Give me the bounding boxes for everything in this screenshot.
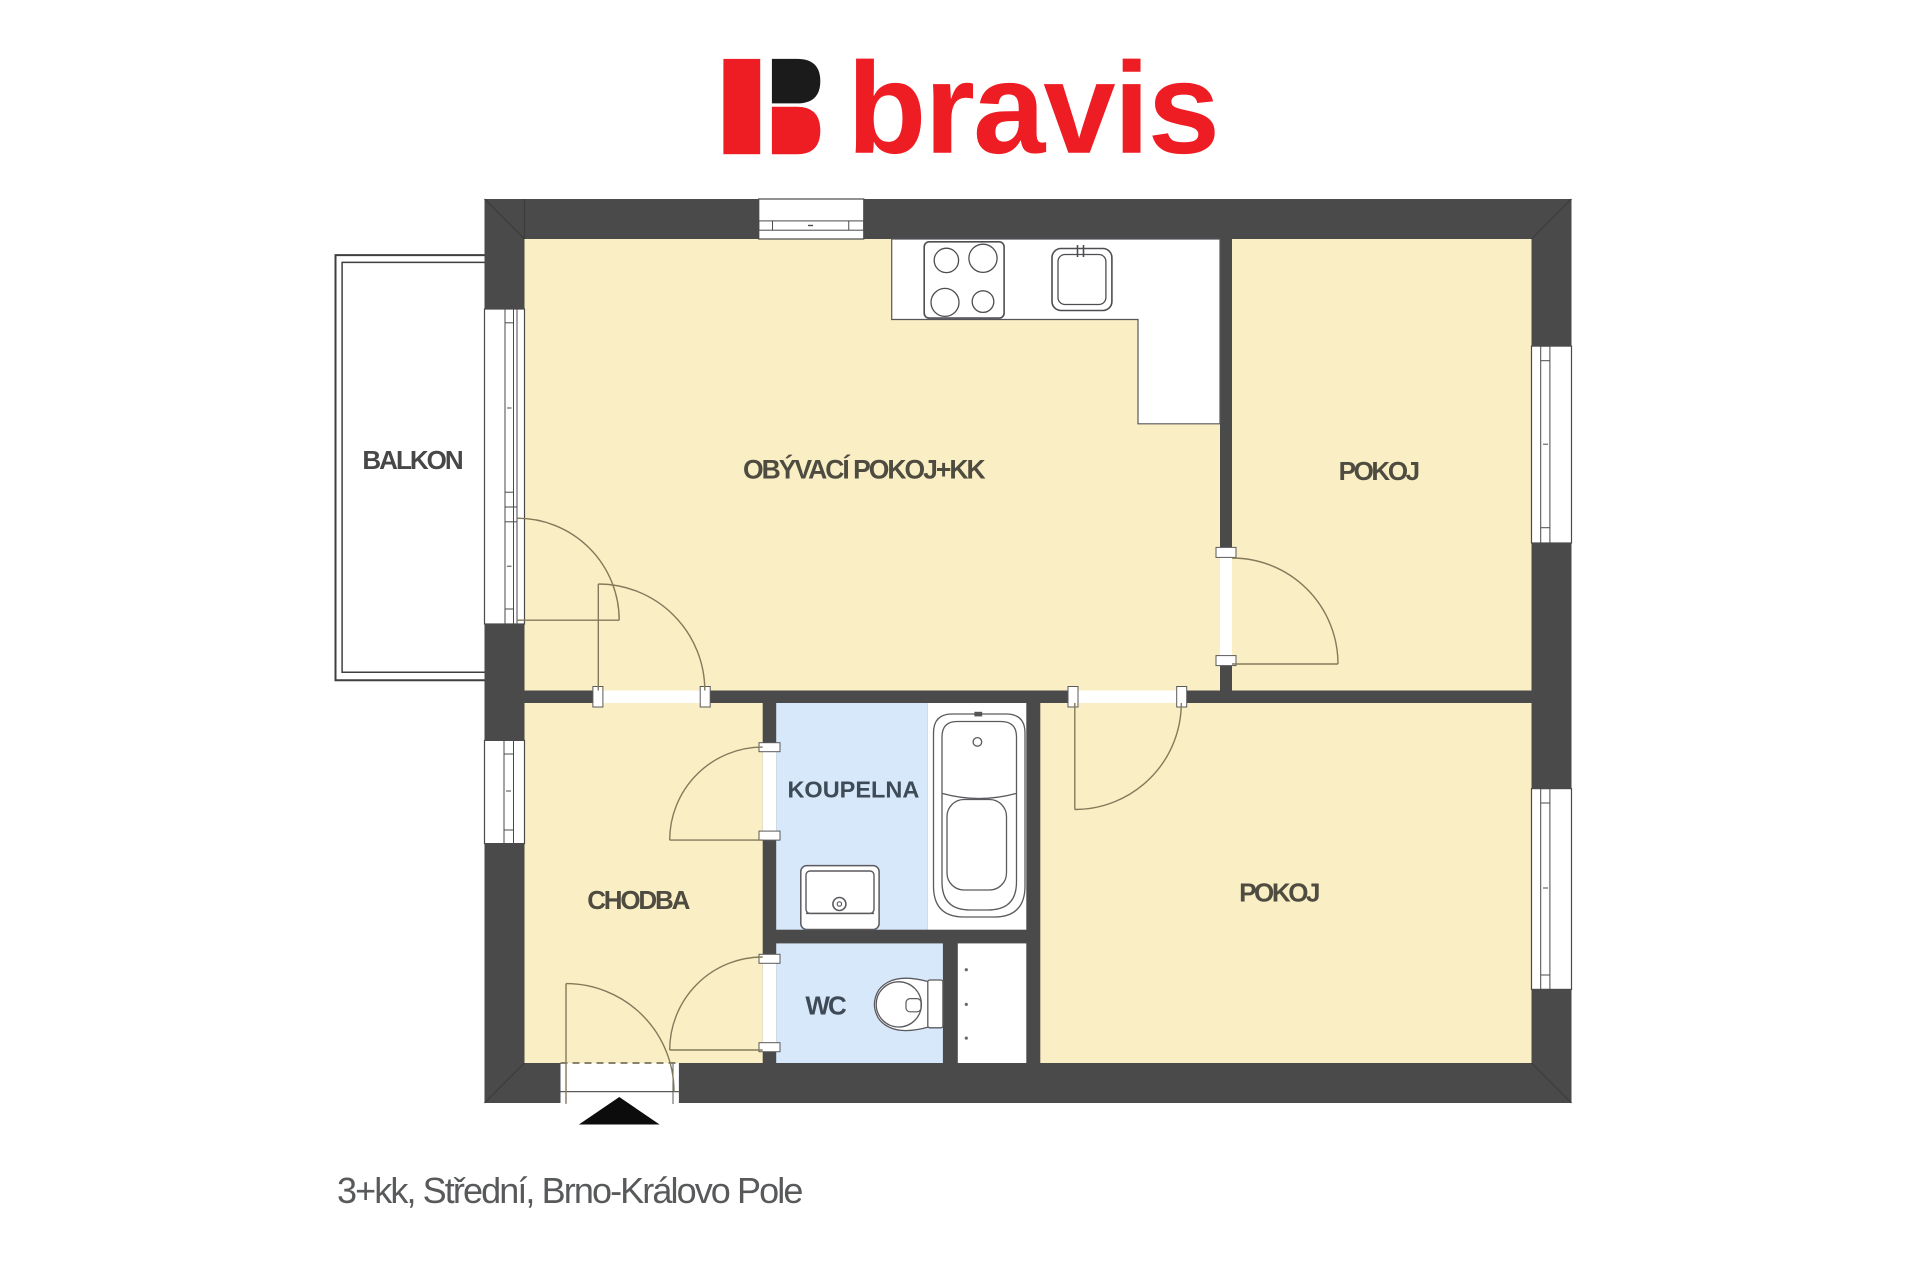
svg-text:BALKON: BALKON [362, 445, 462, 475]
svg-text:POKOJ: POKOJ [1339, 456, 1419, 486]
svg-text:CHODBA: CHODBA [587, 885, 690, 915]
svg-text:KOUPELNA: KOUPELNA [787, 777, 919, 803]
svg-text:POKOJ: POKOJ [1239, 877, 1319, 907]
svg-text:OBÝVACÍ POKOJ+KK: OBÝVACÍ POKOJ+KK [743, 455, 986, 485]
svg-text:WC: WC [805, 991, 847, 1021]
svg-text:3+kk, Střední, Brno-Královo Po: 3+kk, Střední, Brno-Královo Pole [337, 1170, 802, 1211]
svg-text:bravis: bravis [847, 35, 1218, 181]
